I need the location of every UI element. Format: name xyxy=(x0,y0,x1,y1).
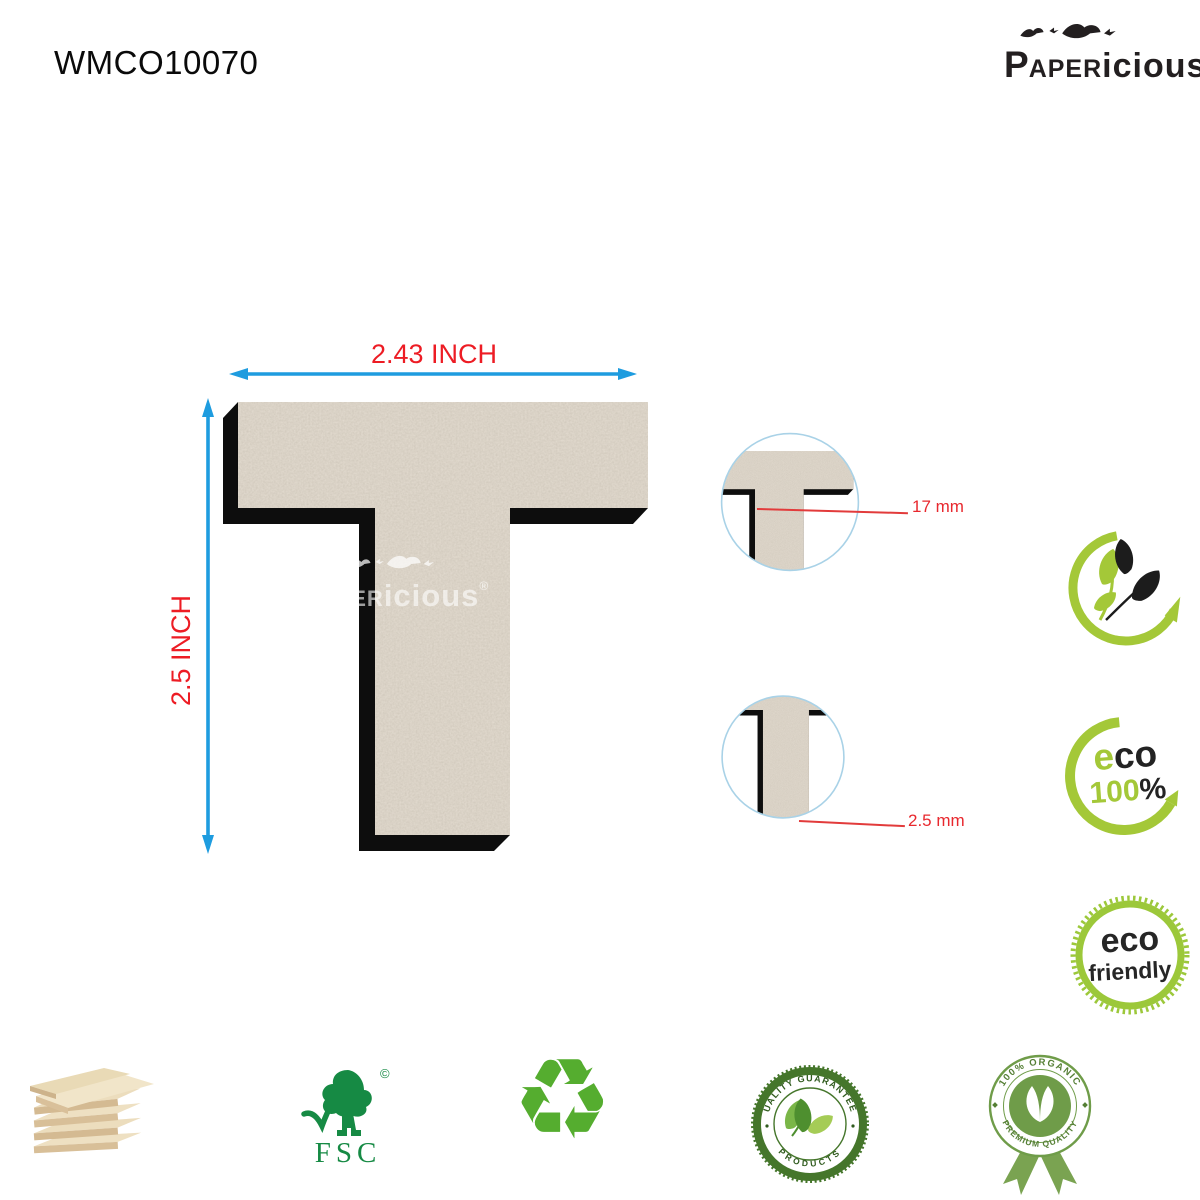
mdf-boards-stack-image xyxy=(26,1050,156,1160)
watermark-birds-icon xyxy=(348,552,436,572)
fsc-label: FSC xyxy=(315,1137,382,1166)
quality-guaranteed-badge: QUALITY GUARANTEED PRODUCTS xyxy=(750,1064,870,1184)
height-dimension-label: 2.5 INCH xyxy=(166,556,197,706)
eco-100-text-pct: 100% xyxy=(1088,772,1167,810)
organic-premium-badge: 100% ORGANIC PREMIUM QUALITY xyxy=(980,1048,1100,1198)
detail-circle-thickness-17mm xyxy=(720,432,860,572)
watermark-letter-p: P xyxy=(296,576,319,614)
recycle-symbol-icon: ♻ xyxy=(512,1040,612,1160)
brand-letters-icious: icious xyxy=(1102,47,1200,85)
watermark-registered-mark: ® xyxy=(479,579,488,593)
height-dimension-arrow xyxy=(200,398,216,854)
eco-friendly-line1: eco xyxy=(1100,919,1161,960)
detail-circle-thickness-2-5mm xyxy=(720,694,846,820)
product-spec-sheet: { "header": { "product_code": "WMCO10070… xyxy=(0,0,1200,1200)
eco-friendly-line2: friendly xyxy=(1088,956,1173,986)
brand-letter-p: P xyxy=(1004,44,1029,85)
brand-letters-aper: APER xyxy=(1029,55,1102,83)
eco-100-percent-icon: eco 100% xyxy=(1062,706,1196,848)
eco-friendly-badge-icon: eco friendly xyxy=(1066,891,1194,1019)
eco-100-text-eco: eco xyxy=(1092,733,1158,778)
brand-birds-icon xyxy=(1018,20,1118,42)
watermark-letters-icious: icious xyxy=(384,578,480,613)
leader-line-2-5mm xyxy=(799,820,905,827)
fsc-logo: © FSC xyxy=(296,1058,400,1166)
fsc-copyright: © xyxy=(380,1066,390,1081)
thickness-label-17mm: 17 mm xyxy=(912,497,964,517)
brand-logo: PAPERicious® xyxy=(1004,18,1200,90)
watermark-wordmark: PAPERicious® xyxy=(296,576,488,615)
product-code: WMCO10070 xyxy=(54,44,258,82)
thickness-label-2-5mm: 2.5 mm xyxy=(908,811,965,831)
brand-wordmark: PAPERicious® xyxy=(1004,44,1200,86)
eco-leaves-arrow-icon xyxy=(1062,522,1194,656)
width-dimension-label: 2.43 INCH xyxy=(371,339,497,370)
mdf-letter-t xyxy=(223,402,648,851)
watermark-letters-aper: APER xyxy=(319,586,384,611)
